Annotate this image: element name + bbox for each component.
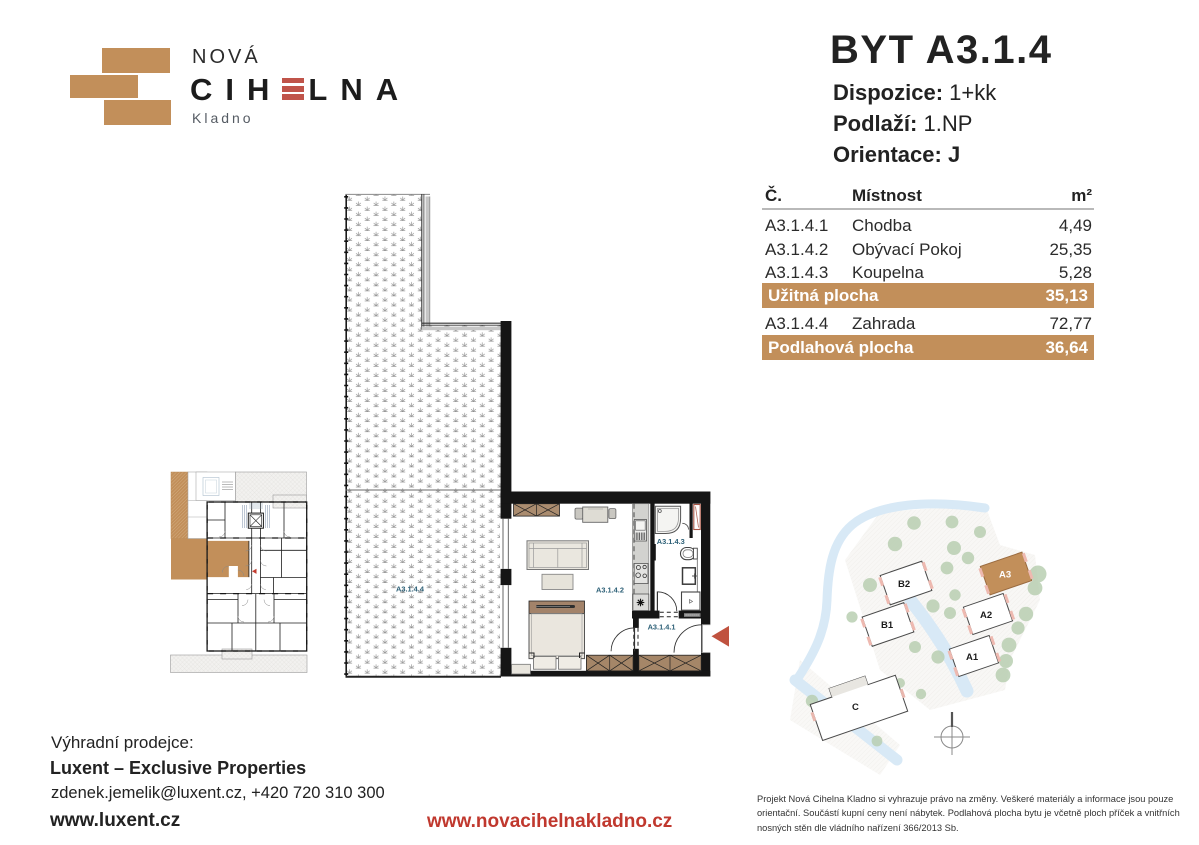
svg-text:A2: A2 [980, 610, 992, 621]
svg-text:A3.1.4.3: A3.1.4.3 [657, 537, 685, 546]
svg-text:A3: A3 [999, 570, 1011, 581]
svg-text:B2: B2 [898, 579, 910, 590]
svg-text:B1: B1 [881, 620, 894, 631]
svg-text:C: C [852, 702, 859, 713]
svg-text:A3.1.4.1: A3.1.4.1 [648, 622, 676, 631]
svg-text:A3.1.4.4: A3.1.4.4 [396, 584, 425, 593]
svg-text:A1: A1 [966, 652, 979, 663]
svg-text:A3.1.4.2: A3.1.4.2 [596, 586, 624, 595]
